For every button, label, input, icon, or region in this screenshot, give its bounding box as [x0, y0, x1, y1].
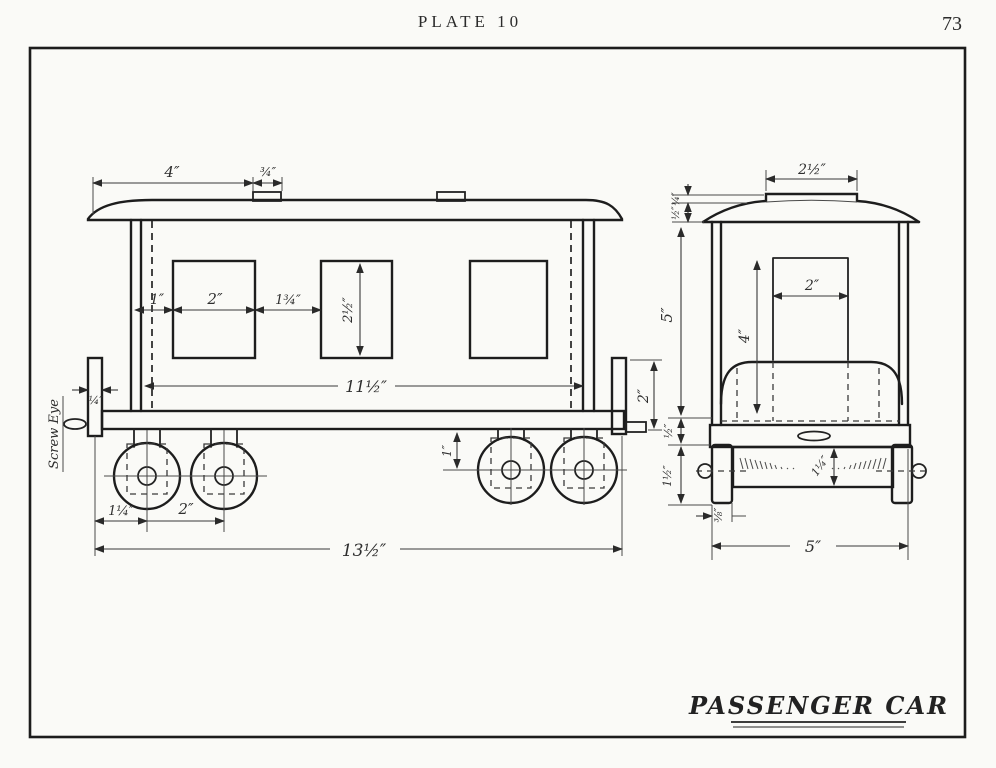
dim-label: 1¼″: [809, 453, 833, 479]
end-railing: [721, 362, 902, 404]
dim-label: 5″: [658, 307, 676, 323]
wheel-edge: [892, 445, 912, 503]
extension-lines: [668, 170, 908, 560]
wheel-edge: [712, 445, 732, 503]
dim-label: 1¾″: [275, 293, 301, 308]
end-roof: [703, 194, 919, 222]
end-door: [773, 258, 848, 360]
dim-label: 2½″: [341, 297, 356, 324]
thread-hatching: [832, 458, 886, 469]
dim-label: ½″: [671, 206, 682, 220]
end-floor-band: [710, 425, 910, 447]
screw-eye-label: Screw Eye: [47, 396, 63, 472]
dim-label: ½″: [662, 423, 675, 439]
dim-label: 1¼″: [108, 504, 134, 519]
plate-label: PLATE 10: [418, 12, 522, 31]
dim-label: 2″: [177, 500, 194, 518]
page-number: 73: [942, 13, 962, 35]
technical-drawing: PLATE 10 73: [0, 0, 996, 768]
window: [470, 261, 547, 358]
dim-label: 2″: [206, 290, 223, 308]
hidden-lines: [721, 362, 900, 421]
dim-label: ¼″: [89, 394, 105, 407]
page-header: PLATE 10 73: [418, 12, 962, 35]
dim-label: 2″: [804, 278, 820, 294]
wheel: [468, 428, 554, 505]
drawing-title: PASSENGER CAR: [688, 691, 949, 720]
dim-label: ¼″: [671, 192, 682, 206]
dim-label: 13½″: [342, 541, 387, 561]
dim-label: ¾″: [260, 165, 277, 179]
side-roof: [88, 200, 622, 220]
step-block: [626, 422, 646, 432]
dim-label: ⅜″: [712, 507, 725, 523]
dim-label: 4″: [163, 163, 180, 181]
clerestory-base: [766, 200, 857, 202]
screw-eye: [64, 419, 86, 429]
floor-band: [102, 411, 624, 429]
drawing-frame: [30, 48, 965, 737]
side-view: 4″ ¾″ ¼″ 1″ 2″ 1¾″ 2½″ 11½″ 2″ 1″ 1¼″ 2″…: [47, 163, 662, 561]
dim-label: 5″: [805, 537, 821, 556]
dim-label: 2″: [636, 388, 652, 404]
dim-label: 1½″: [661, 464, 674, 487]
dim-label: 11½″: [345, 377, 387, 396]
end-view: 2½″ ¼″ ½″ 5″ ½″ 1½″ 2″ 4″ 1¼″ ⅜″ 5″: [658, 162, 927, 560]
dim-label: 4″: [737, 328, 753, 344]
wheel: [541, 428, 627, 505]
coupler-slot: [798, 432, 830, 441]
svg-text:Screw Eye: Screw Eye: [47, 399, 62, 469]
dim-label: 1″: [440, 444, 454, 457]
window: [321, 261, 392, 358]
title-block: PASSENGER CAR: [688, 691, 949, 727]
book-page: PLATE 10 73: [0, 0, 996, 768]
dim-label: 2½″: [797, 162, 826, 178]
thread-hatching: [740, 458, 794, 469]
dim-label: 1″: [150, 292, 165, 308]
